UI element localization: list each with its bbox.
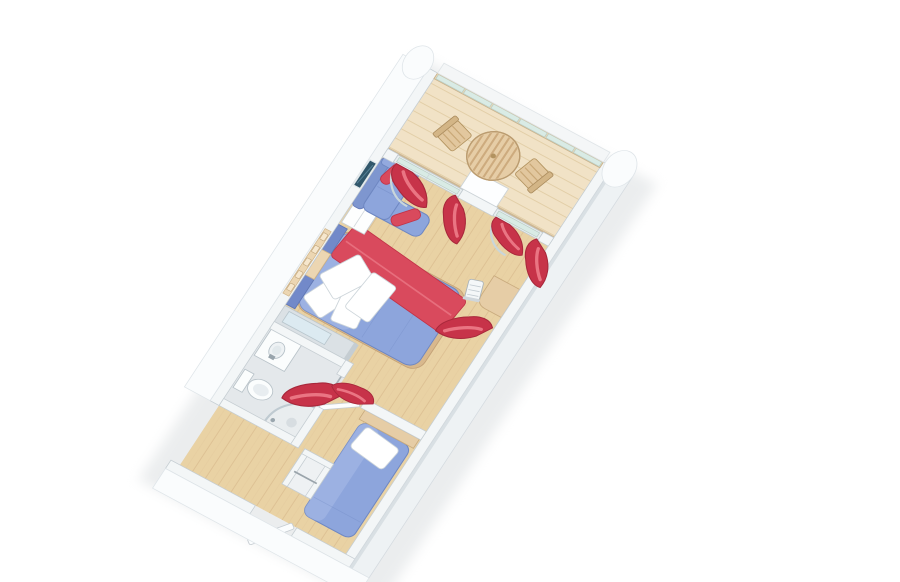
floorplan-stage bbox=[0, 0, 900, 582]
cabin-floorplan-svg bbox=[0, 0, 900, 582]
